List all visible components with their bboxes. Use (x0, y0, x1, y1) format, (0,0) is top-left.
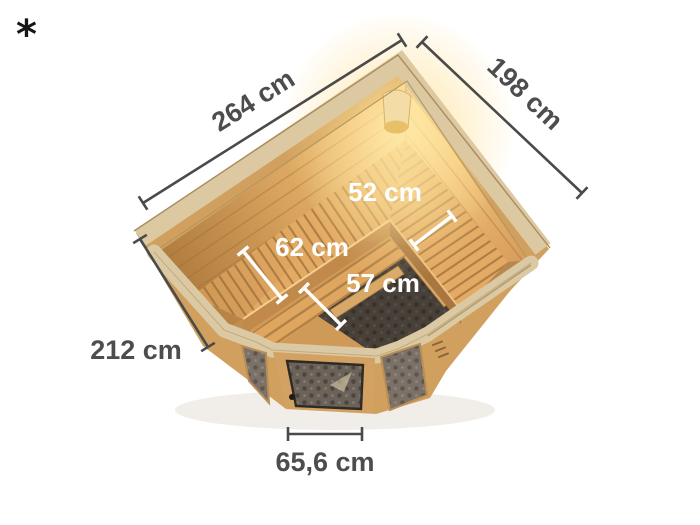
door-handle (289, 394, 295, 400)
dimension-label-52: 52 cm (348, 177, 422, 207)
sauna-illustration: * (0, 0, 700, 525)
door-glass (287, 361, 363, 409)
dimension-label-65-6: 65,6 cm (275, 447, 374, 477)
sauna-door (273, 352, 375, 413)
dimension-65-6: 65,6 cm (275, 427, 374, 477)
dimension-label-57: 57 cm (346, 268, 420, 298)
product-dimension-diagram: * (0, 0, 700, 525)
footnote-asterisk: * (16, 12, 37, 58)
dimension-label-212: 212 cm (90, 335, 182, 365)
dimension-label-62: 62 cm (275, 232, 349, 262)
corner-lamp (383, 90, 411, 134)
